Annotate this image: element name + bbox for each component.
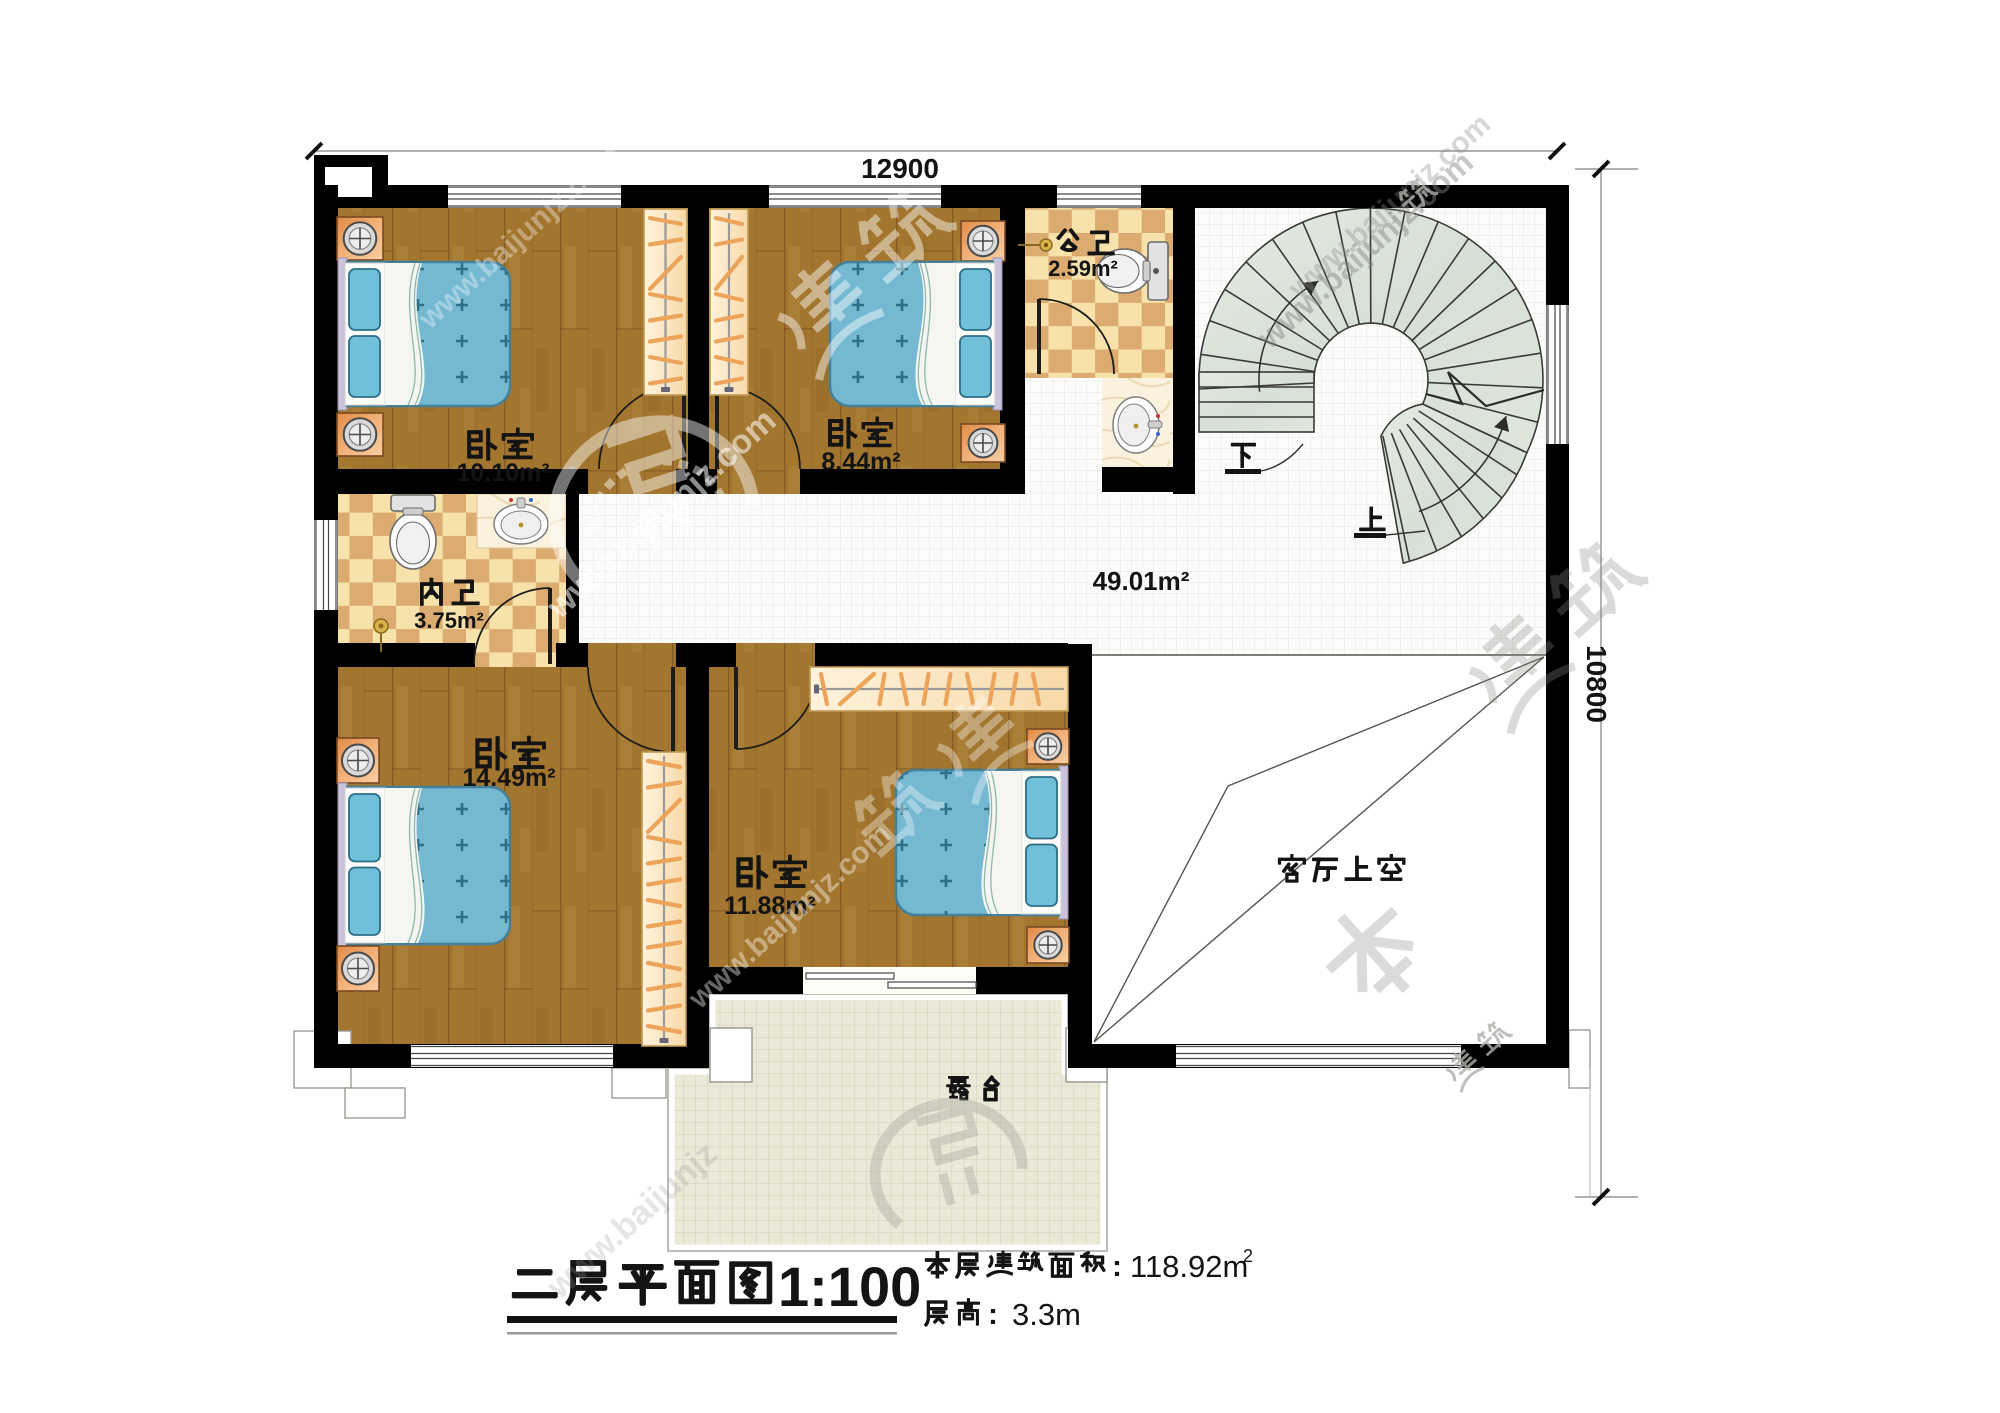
svg-text:118.92m: 118.92m [1130,1249,1248,1284]
svg-text:49.01m²: 49.01m² [1093,566,1190,596]
svg-text:10.10m²: 10.10m² [456,459,549,487]
svg-text:3.3m: 3.3m [1012,1297,1081,1332]
svg-text:8.44m²: 8.44m² [821,448,900,476]
svg-text:10800: 10800 [1581,645,1612,723]
svg-text:2: 2 [1243,1246,1253,1266]
svg-text:2.59m²: 2.59m² [1048,256,1118,281]
svg-text:12900: 12900 [861,153,939,184]
svg-text::: : [1112,1250,1122,1283]
svg-text:14.49m²: 14.49m² [462,764,555,792]
svg-text:1:100: 1:100 [778,1255,921,1318]
svg-text:3.75m²: 3.75m² [414,608,484,633]
svg-text::: : [988,1298,998,1331]
